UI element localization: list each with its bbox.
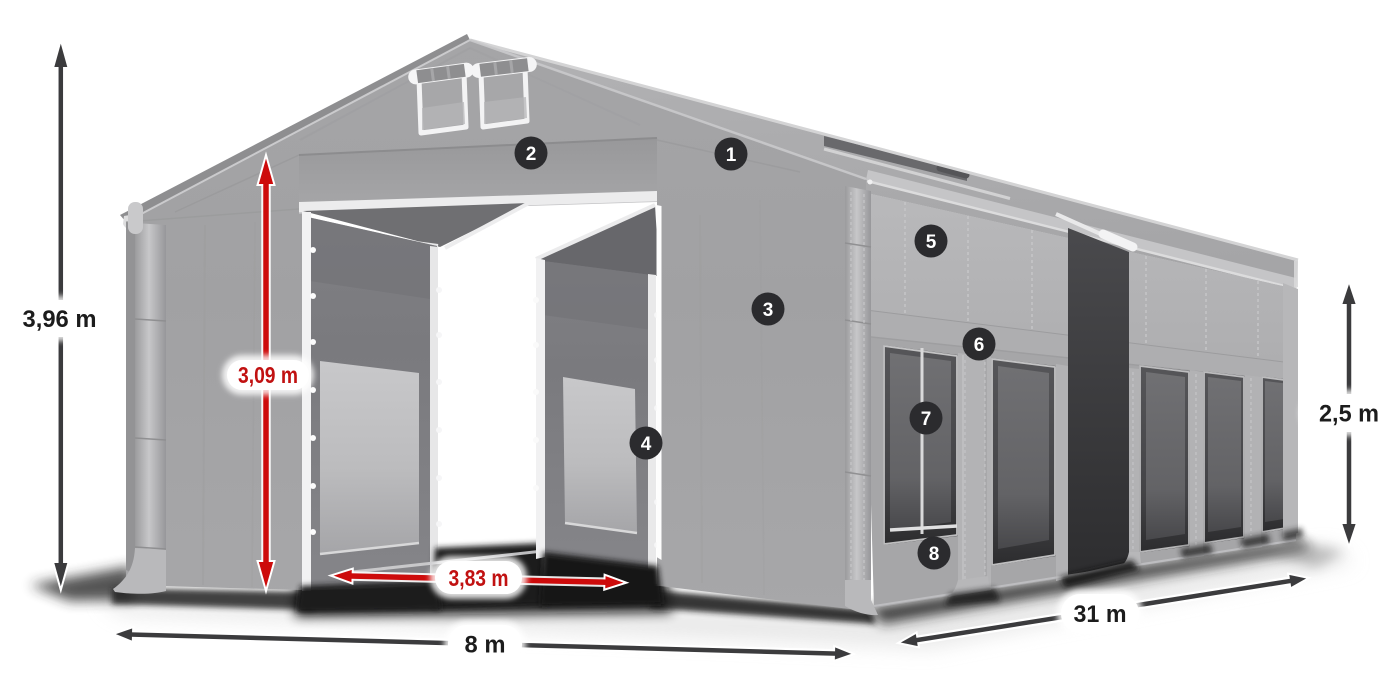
svg-text:8 m: 8 m xyxy=(465,632,506,659)
svg-text:3: 3 xyxy=(763,300,774,321)
svg-text:3,83 m: 3,83 m xyxy=(449,565,509,591)
svg-text:4: 4 xyxy=(641,434,652,455)
svg-text:6: 6 xyxy=(974,335,985,356)
svg-text:7: 7 xyxy=(921,409,932,430)
svg-text:2,5 m: 2,5 m xyxy=(1319,401,1379,428)
svg-text:3,09 m: 3,09 m xyxy=(238,362,298,388)
svg-text:2: 2 xyxy=(526,144,537,165)
svg-text:1: 1 xyxy=(726,145,737,166)
svg-text:31 m: 31 m xyxy=(1074,601,1127,628)
svg-text:5: 5 xyxy=(926,232,937,253)
svg-text:8: 8 xyxy=(929,544,940,565)
svg-text:3,96 m: 3,96 m xyxy=(23,306,97,333)
